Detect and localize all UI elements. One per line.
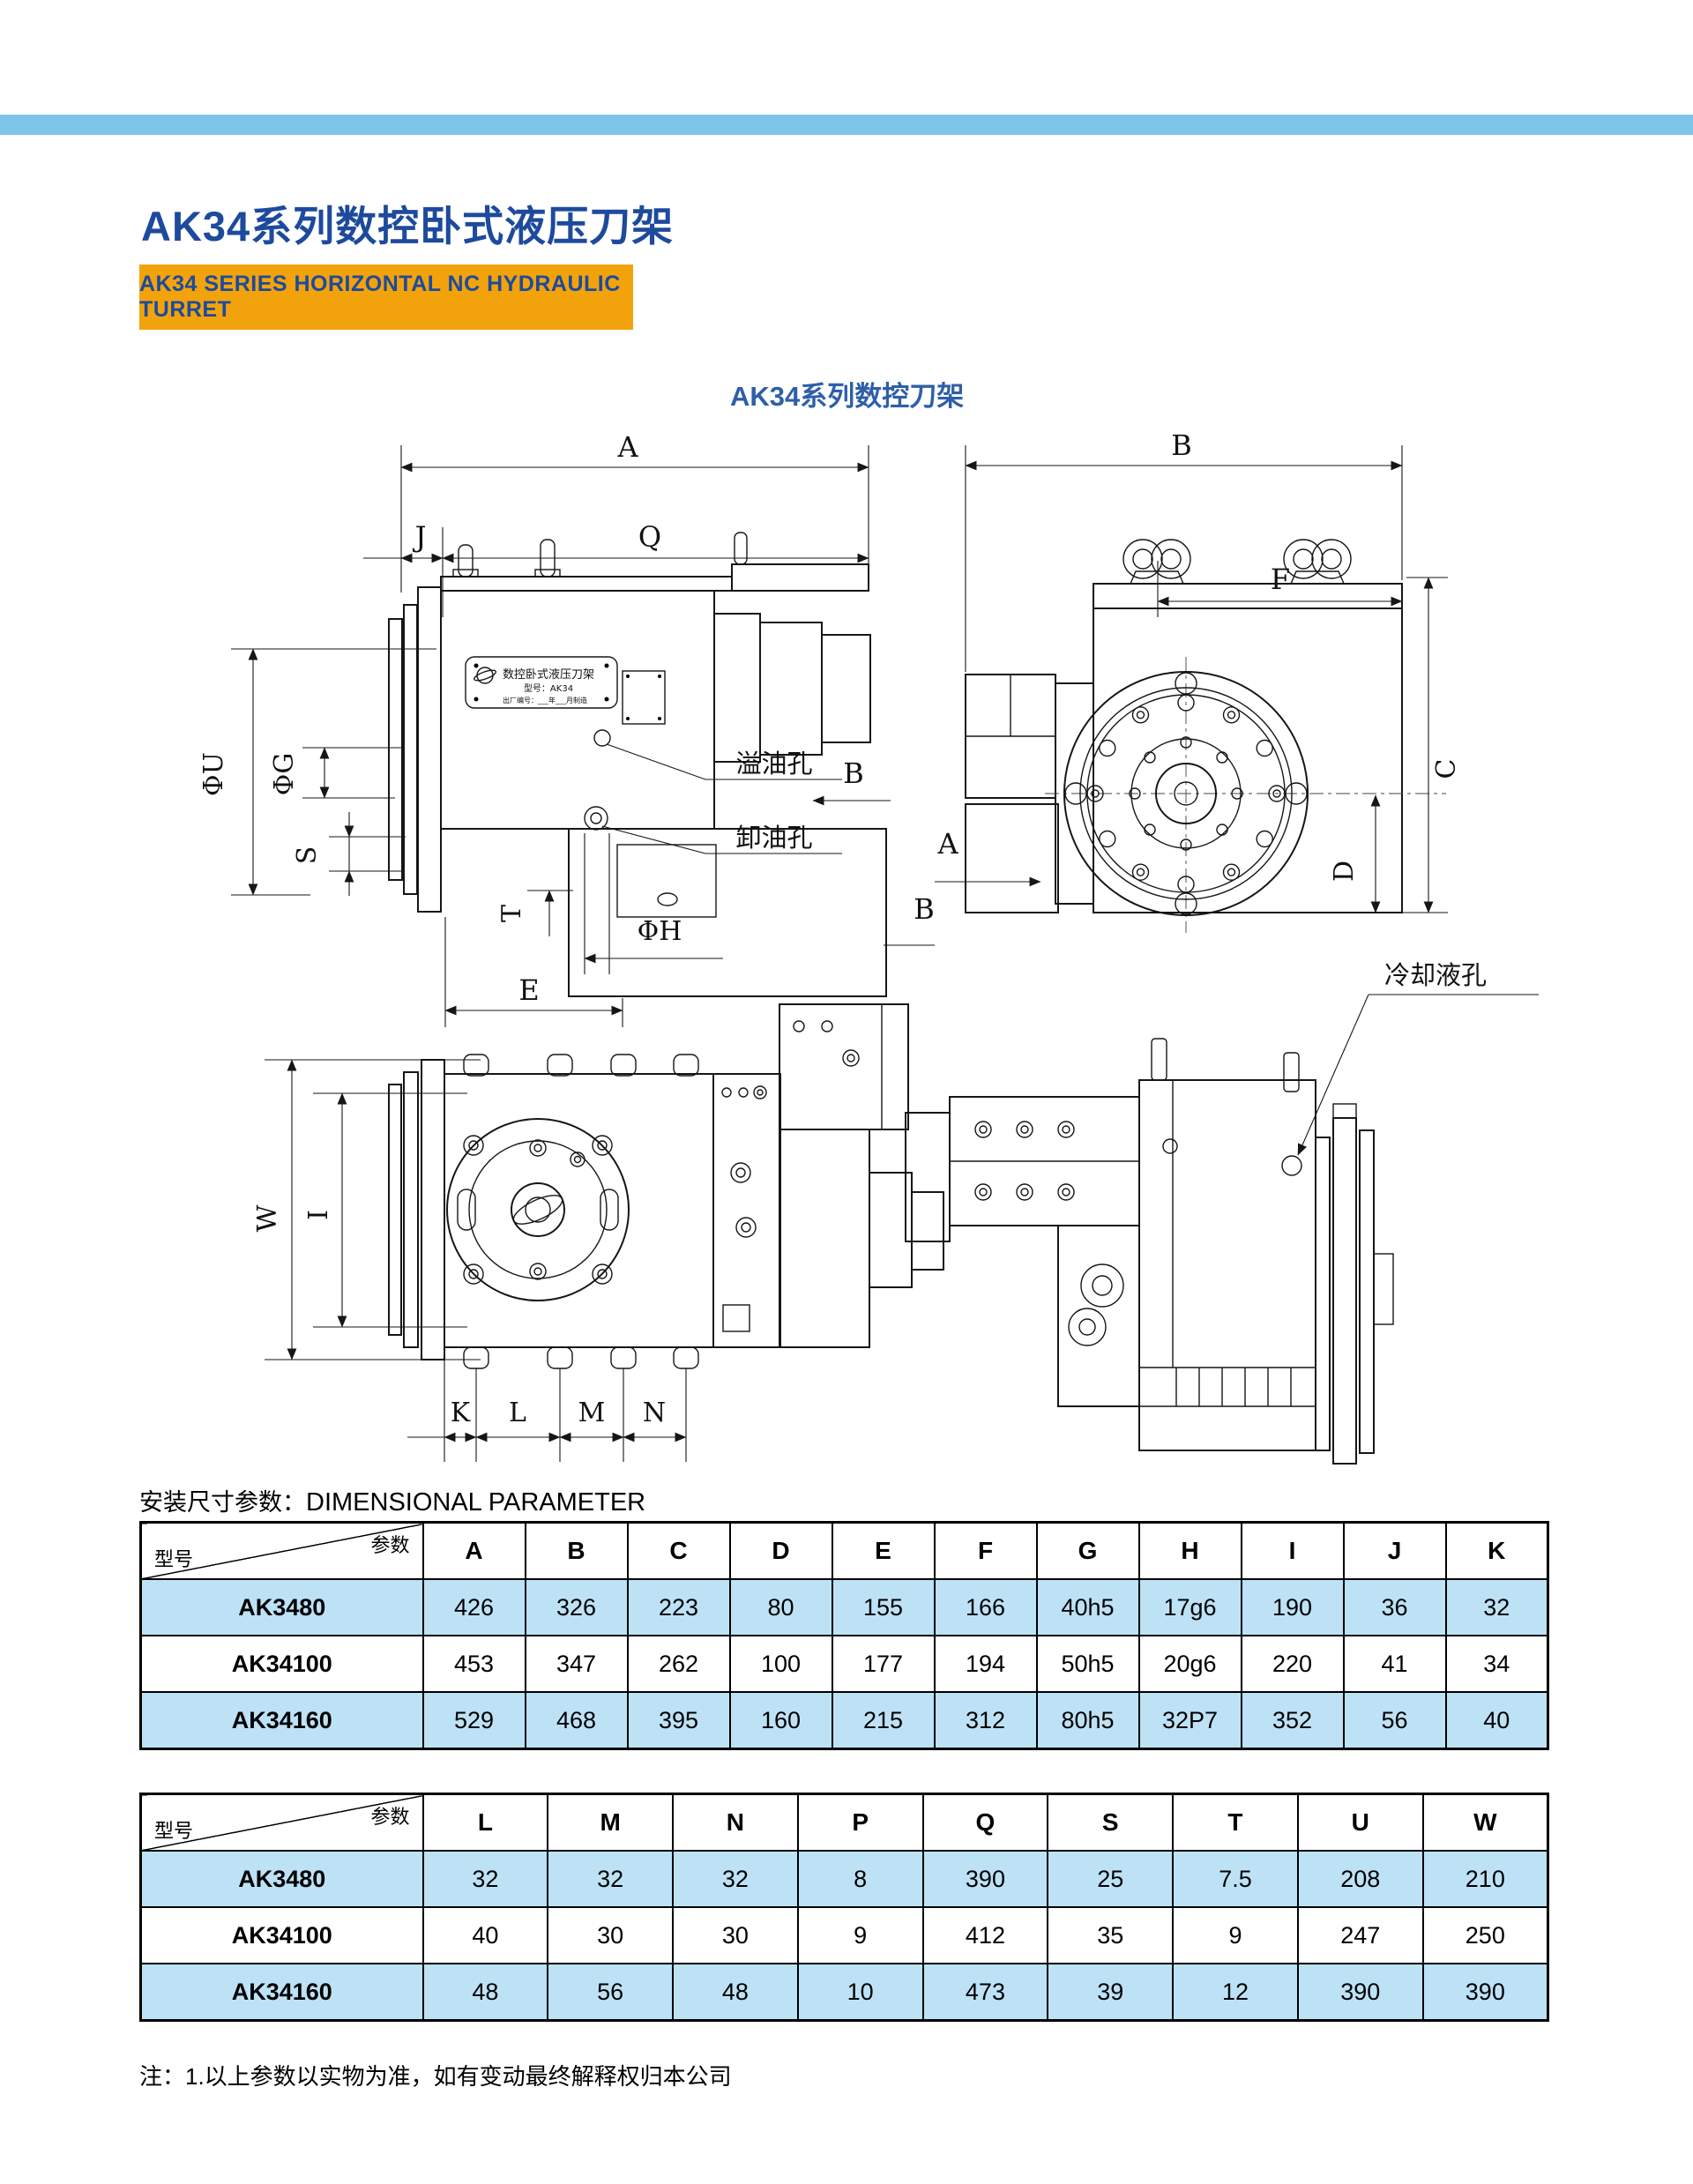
overflow-hole-label: 溢油孔 xyxy=(735,749,812,779)
value-cell: 347 xyxy=(526,1636,628,1692)
value-cell: 40 xyxy=(423,1907,548,1964)
dim-label-m: M xyxy=(578,1398,606,1428)
value-cell: 32 xyxy=(1446,1579,1548,1636)
model-cell: AK34100 xyxy=(141,1636,423,1692)
value-cell: 215 xyxy=(832,1692,935,1749)
col-header: B xyxy=(526,1523,628,1580)
flange-bolts xyxy=(458,1136,618,1284)
value-cell: 32 xyxy=(548,1851,673,1907)
model-cell: AK3480 xyxy=(141,1851,423,1907)
footnote: 注：1.以上参数以实物为准，如有变动最终解释权归本公司 xyxy=(139,2059,732,2091)
dim-label-a: A xyxy=(616,430,638,464)
value-cell: 160 xyxy=(730,1692,832,1749)
view-side: A J Q xyxy=(198,430,891,1027)
model-cell: AK34160 xyxy=(141,1964,423,2021)
table-row: AK34160 48 56 48 10 473 39 12 390 390 xyxy=(141,1964,1548,2021)
col-header: J xyxy=(1344,1523,1446,1580)
col-header: S xyxy=(1048,1794,1173,1852)
value-cell: 56 xyxy=(548,1964,673,2021)
dim-label-j: J xyxy=(413,520,427,554)
value-cell: 210 xyxy=(1423,1851,1548,1907)
dim-label-phi-g: ΦG xyxy=(269,753,300,796)
corner-label-model: 型号 xyxy=(154,1544,193,1572)
value-cell: 390 xyxy=(923,1851,1048,1907)
corner-label-param: 参数 xyxy=(370,1530,409,1558)
table-row: AK34160 529 468 395 160 215 312 80h5 32P… xyxy=(141,1692,1548,1749)
dim-label-l: L xyxy=(509,1398,526,1428)
table1-corner-cell: 参数 型号 xyxy=(141,1523,423,1580)
value-cell: 48 xyxy=(673,1964,798,2021)
value-cell: 390 xyxy=(1423,1964,1548,2021)
value-cell: 80 xyxy=(730,1579,832,1636)
table-row: AK3480 426 326 223 80 155 166 40h5 17g6 … xyxy=(141,1579,1548,1636)
value-cell: 468 xyxy=(526,1692,628,1749)
nameplate: 数控卧式液压刀架 型号：AK34 出厂编号：___年___月制造 xyxy=(466,657,617,708)
value-cell: 8 xyxy=(798,1851,923,1907)
value-cell: 390 xyxy=(1298,1964,1423,2021)
value-cell: 56 xyxy=(1344,1692,1446,1749)
catalog-page: AK34系列数控卧式液压刀架 AK34 SERIES HORIZONTAL NC… xyxy=(0,0,1693,2184)
value-cell: 32 xyxy=(423,1851,548,1907)
dim-label-t: T xyxy=(496,905,527,922)
col-header: I xyxy=(1242,1523,1344,1580)
value-cell: 30 xyxy=(673,1907,798,1964)
value-cell: 426 xyxy=(423,1579,526,1636)
dim-label-phi-h: ΦH xyxy=(638,916,682,947)
dim-label-f: F xyxy=(1271,563,1290,596)
dim-label-e: E xyxy=(518,973,539,1007)
value-cell: 395 xyxy=(628,1692,730,1749)
col-header: Q xyxy=(923,1794,1048,1852)
dim-label-phi-u: ΦU xyxy=(198,752,229,796)
value-cell: 40h5 xyxy=(1037,1579,1139,1636)
table2-corner-cell: 参数 型号 xyxy=(141,1794,423,1852)
value-cell: 41 xyxy=(1344,1636,1446,1692)
drain-hole-label: 卸油孔 xyxy=(735,823,812,853)
value-cell: 12 xyxy=(1173,1964,1298,2021)
value-cell: 10 xyxy=(798,1964,923,2021)
dim-label-d: D xyxy=(1329,861,1360,882)
table1-header-row: 参数 型号 A B C D E F G H I J K xyxy=(141,1523,1548,1580)
value-cell: 32P7 xyxy=(1139,1692,1242,1749)
table-row: AK34100 453 347 262 100 177 194 50h5 20g… xyxy=(141,1636,1548,1692)
view-arrow-a-label: A xyxy=(936,827,958,861)
col-header: A xyxy=(423,1523,526,1580)
value-cell: 453 xyxy=(423,1636,526,1692)
value-cell: 32 xyxy=(673,1851,798,1907)
view-front: B F xyxy=(884,429,1462,945)
dim-label-i: I xyxy=(303,1210,334,1220)
dim-label-b: B xyxy=(1171,429,1192,462)
value-cell: 250 xyxy=(1423,1907,1548,1964)
col-header: K xyxy=(1446,1523,1548,1580)
value-cell: 223 xyxy=(628,1579,730,1636)
mount-tabs xyxy=(464,1055,698,1368)
value-cell: 473 xyxy=(923,1964,1048,2021)
col-header: U xyxy=(1298,1794,1423,1852)
view-arrow-b-label: B xyxy=(843,757,864,790)
value-cell: 312 xyxy=(935,1692,1037,1749)
coolant-hole-label: 冷却液孔 xyxy=(1384,960,1487,990)
col-header: E xyxy=(832,1523,935,1580)
dim-label-k: K xyxy=(451,1398,471,1428)
dimension-table-2: 参数 型号 L M N P Q S T U W AK3480 32 32 32 … xyxy=(139,1793,1549,2022)
value-cell: 20g6 xyxy=(1139,1636,1242,1692)
value-cell: 220 xyxy=(1242,1636,1344,1692)
table-row: AK3480 32 32 32 8 390 25 7.5 208 210 xyxy=(141,1851,1548,1907)
corner-label-param: 参数 xyxy=(370,1801,409,1830)
corner-label-model: 型号 xyxy=(154,1815,193,1844)
value-cell: 326 xyxy=(526,1579,628,1636)
col-header: T xyxy=(1173,1794,1298,1852)
view-arrow-b2-label: B xyxy=(914,892,935,926)
col-header: D xyxy=(730,1523,832,1580)
value-cell: 9 xyxy=(1173,1907,1298,1964)
section-heading: 安装尺寸参数：DIMENSIONAL PARAMETER xyxy=(139,1483,645,1517)
value-cell: 30 xyxy=(548,1907,673,1964)
table-row: AK34100 40 30 30 9 412 35 9 247 250 xyxy=(141,1907,1548,1964)
model-cell: AK3480 xyxy=(141,1579,423,1636)
col-header: F xyxy=(935,1523,1037,1580)
value-cell: 9 xyxy=(798,1907,923,1964)
value-cell: 166 xyxy=(935,1579,1037,1636)
section-heading-zh: 安装尺寸参数： xyxy=(139,1489,306,1516)
nameplate-model: 型号：AK34 xyxy=(524,682,573,694)
value-cell: 208 xyxy=(1298,1851,1423,1907)
value-cell: 48 xyxy=(423,1964,548,2021)
value-cell: 7.5 xyxy=(1173,1851,1298,1907)
section-heading-en: DIMENSIONAL PARAMETER xyxy=(306,1488,645,1517)
dim-label-c: C xyxy=(1431,759,1462,779)
col-header: L xyxy=(423,1794,548,1852)
col-header: W xyxy=(1423,1794,1548,1852)
col-header: P xyxy=(798,1794,923,1852)
value-cell: 17g6 xyxy=(1139,1579,1242,1636)
nameplate-title: 数控卧式液压刀架 xyxy=(503,668,594,682)
value-cell: 35 xyxy=(1048,1907,1173,1964)
value-cell: 36 xyxy=(1344,1579,1446,1636)
col-header: H xyxy=(1139,1523,1242,1580)
value-cell: 80h5 xyxy=(1037,1692,1139,1749)
dim-label-n: N xyxy=(643,1398,666,1428)
value-cell: 100 xyxy=(730,1636,832,1692)
value-cell: 352 xyxy=(1242,1692,1344,1749)
value-cell: 412 xyxy=(923,1907,1048,1964)
value-cell: 50h5 xyxy=(1037,1636,1139,1692)
value-cell: 262 xyxy=(628,1636,730,1692)
nameplate-serial: 出厂编号：___年___月制造 xyxy=(503,696,587,704)
dimension-table-1: 参数 型号 A B C D E F G H I J K AK3480 426 3… xyxy=(139,1521,1549,1750)
dim-label-q: Q xyxy=(638,520,661,554)
value-cell: 25 xyxy=(1048,1851,1173,1907)
view-rear: 冷却液孔 xyxy=(906,960,1539,1464)
view-disc: W I xyxy=(252,1004,943,1462)
value-cell: 39 xyxy=(1048,1964,1173,2021)
col-header: N xyxy=(673,1794,798,1852)
value-cell: 247 xyxy=(1298,1907,1423,1964)
col-header: C xyxy=(628,1523,730,1580)
value-cell: 155 xyxy=(832,1579,935,1636)
value-cell: 529 xyxy=(423,1692,526,1749)
value-cell: 40 xyxy=(1446,1692,1548,1749)
table2-header-row: 参数 型号 L M N P Q S T U W xyxy=(141,1794,1548,1852)
dim-label-s: S xyxy=(292,846,323,865)
value-cell: 190 xyxy=(1242,1579,1344,1636)
value-cell: 194 xyxy=(935,1636,1037,1692)
col-header: G xyxy=(1037,1523,1139,1580)
dim-label-w: W xyxy=(252,1204,283,1232)
value-cell: 34 xyxy=(1446,1636,1548,1692)
value-cell: 177 xyxy=(832,1636,935,1692)
col-header: M xyxy=(548,1794,673,1852)
model-cell: AK34160 xyxy=(141,1692,423,1749)
model-cell: AK34100 xyxy=(141,1907,423,1964)
